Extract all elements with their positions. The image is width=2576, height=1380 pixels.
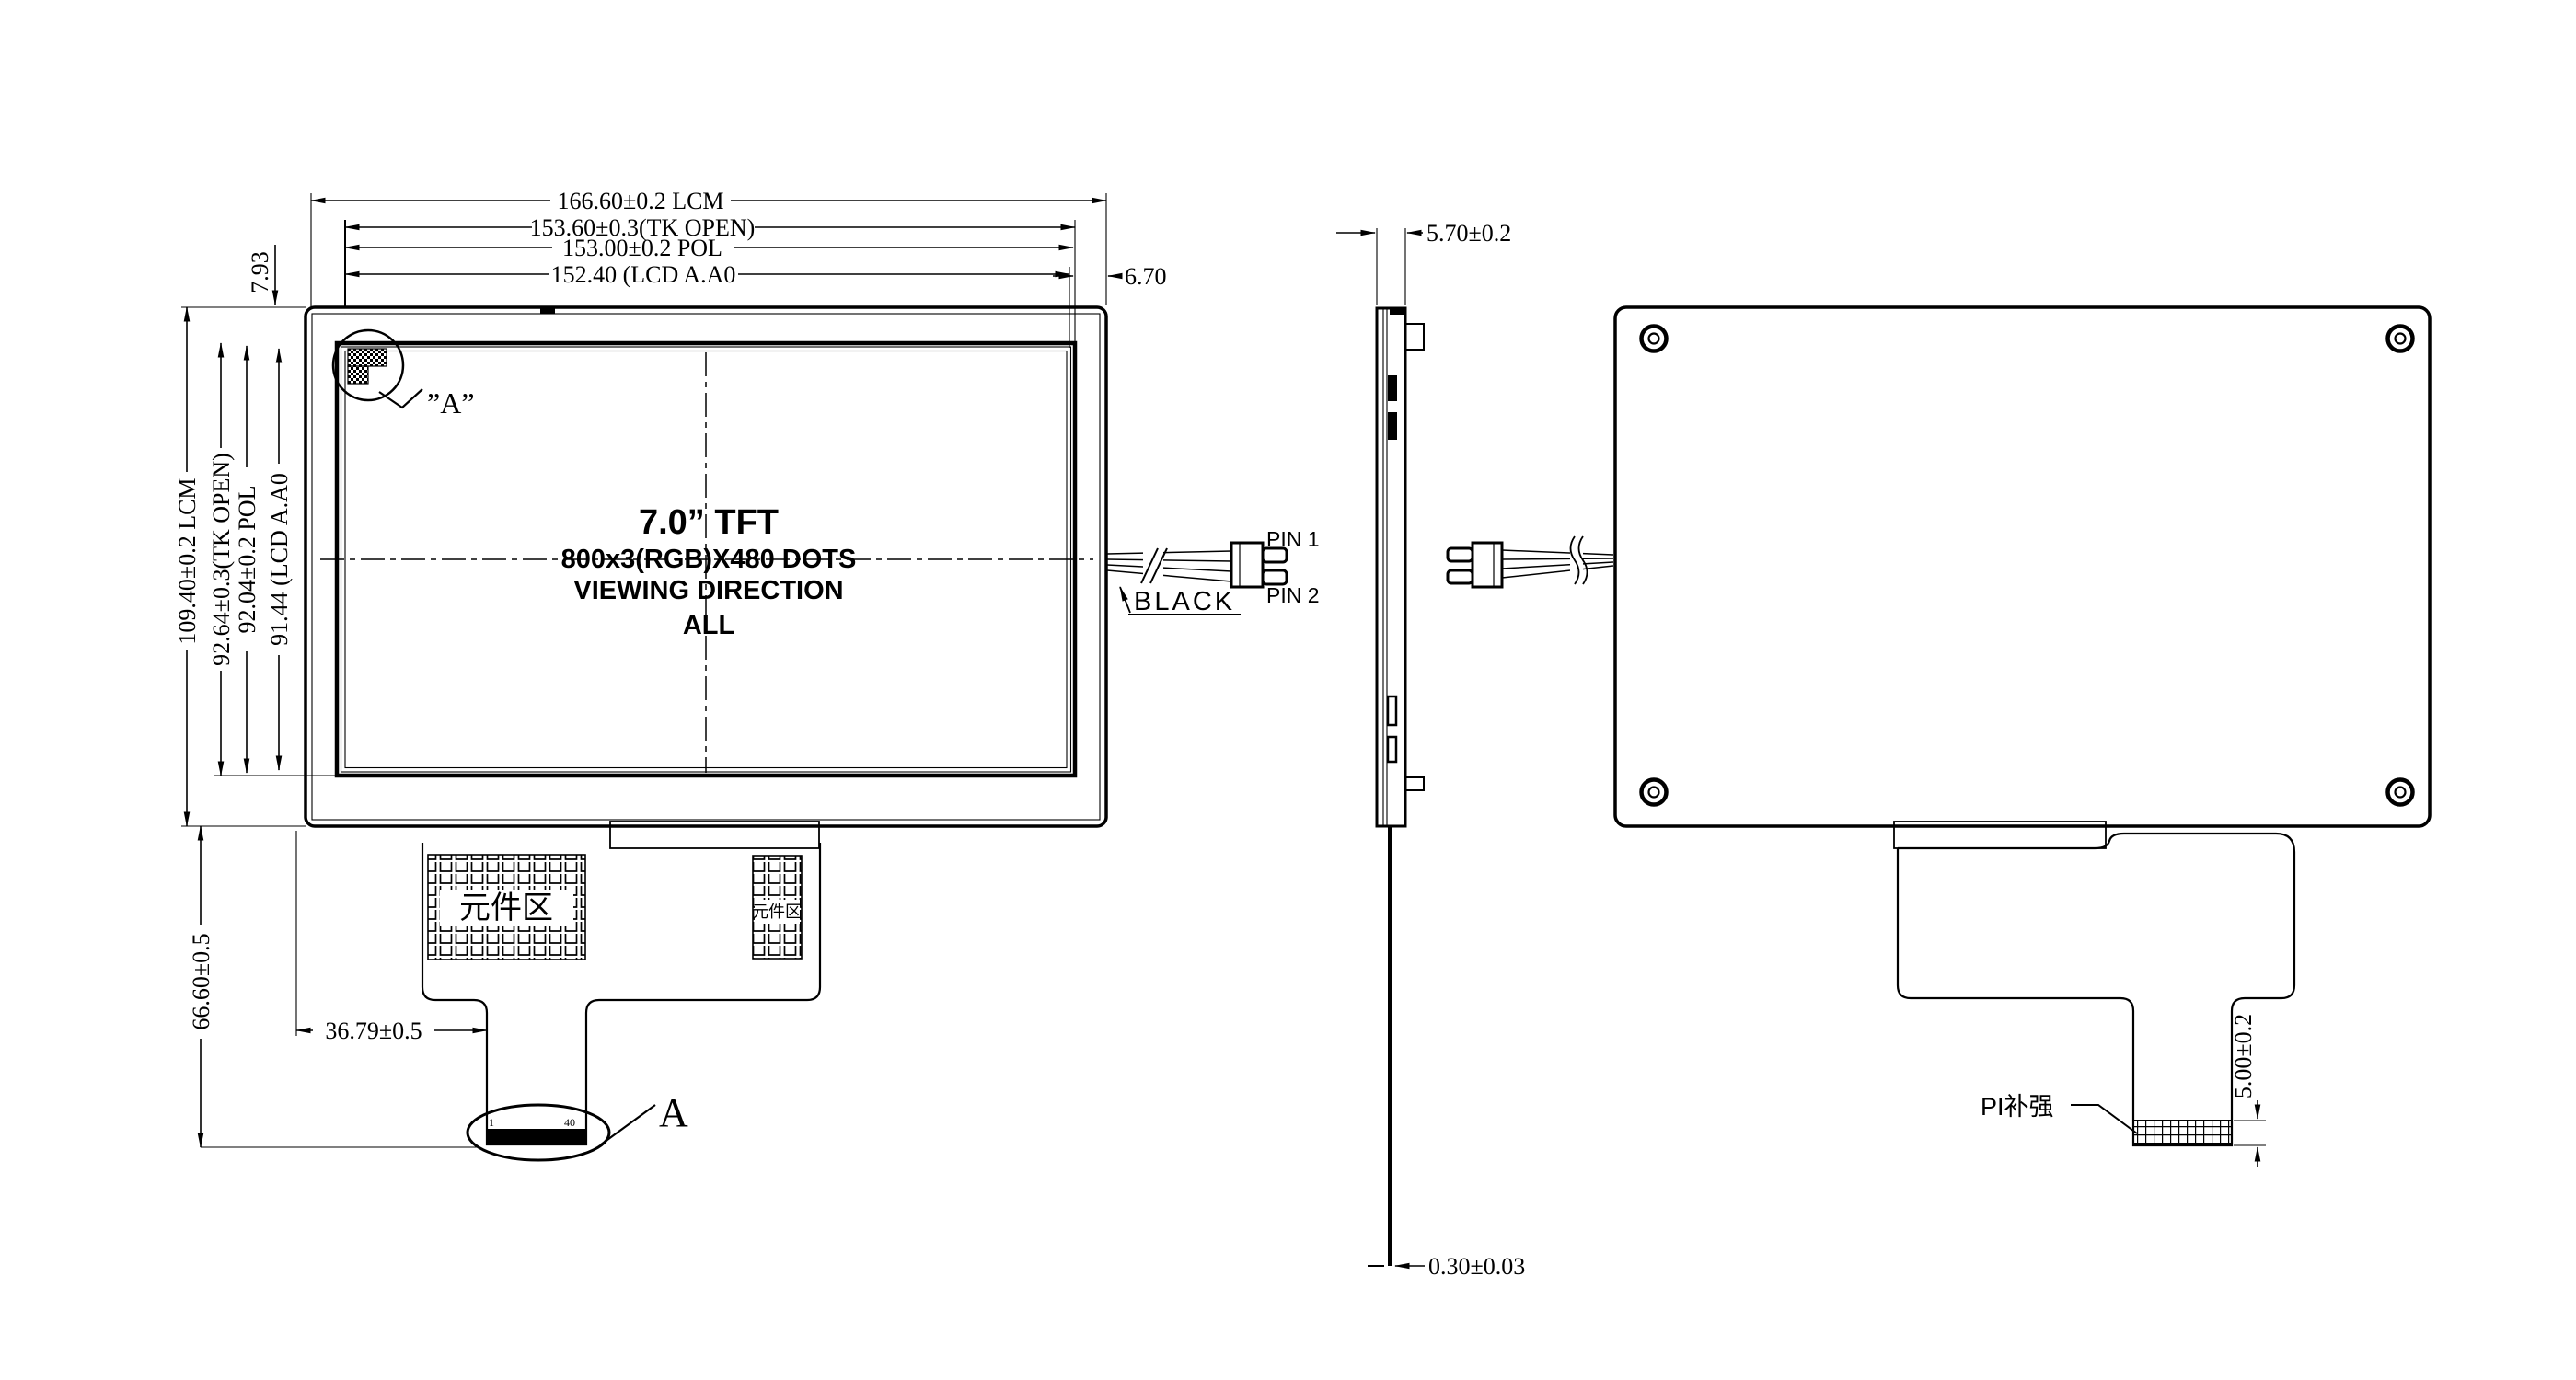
dim-height-pol: 92.04±0.2 POL [234,486,260,634]
pin2-label: PIN 2 [1266,583,1320,607]
dim-width-pol: 153.00±0.2 POL [562,235,722,261]
pad-first-label: 1 [489,1116,494,1129]
top-edge-tab [540,307,555,314]
dim-tail-offset: 36.79±0.5 [325,1018,422,1044]
detail-a-ref: ”A” [427,386,475,420]
dim-right-gap: 6.70 [1125,263,1167,290]
front-view [174,188,1287,1160]
dim-stiffener-height: 5.00±0.2 [2230,1014,2257,1098]
stiffener-leader [2071,1105,2137,1133]
dim-width-lcm: 166.60±0.2 LCM [557,188,723,214]
side-top-cap [1390,308,1405,315]
mounting-hole [2388,327,2413,351]
component-area-label: 元件区 [459,891,553,926]
side-component [1388,737,1396,762]
detail-a-ellipse-leader [601,1105,655,1144]
back-outline [1615,307,2430,826]
side-bottom-tab [1405,777,1424,790]
dim-width-aa: 152.40 (LCD A.A0 [551,261,736,288]
pin1-label: PIN 1 [1266,527,1320,551]
dim-height-tk: 92.64±0.3(TK OPEN) [208,453,235,666]
dim-height-lcm: 109.40±0.2 LCM [174,477,201,644]
dim-thickness: 5.70±0.2 [1427,220,1511,247]
fpc-contact-bar [487,1129,586,1144]
pad-last-label: 40 [564,1116,575,1129]
back-view-labels: PI补强 5.00±0.2 [1981,1014,2257,1121]
pi-stiffener-bar [2133,1121,2232,1145]
resolution-label: 800x3(RGB)X480 DOTS [561,545,857,574]
side-view-labels: 5.70±0.2 0.30±0.03 [1427,220,1525,1280]
component-area-small-label: 元件区 [752,903,802,921]
detail-a-leader [379,389,422,408]
detail-a-label: A [659,1090,688,1135]
side-component [1388,375,1397,401]
front-view-labels: 166.60±0.2 LCM 153.60±0.3(TK OPEN) 153.0… [174,188,1320,1135]
driver-ic [348,349,387,384]
back-view [1615,307,2430,1167]
engineering-drawing-canvas: 166.60±0.2 LCM 153.60±0.3(TK OPEN) 153.0… [0,0,2576,1380]
stiffener-label: PI补强 [1981,1093,2054,1121]
dim-fpc-thickness: 0.30±0.03 [1428,1253,1525,1280]
dim-top-gap: 7.93 [247,251,273,293]
backlight-cable [1107,546,1231,586]
side-component [1388,696,1396,725]
side-view [1336,228,1425,1266]
dim-fpc-length: 66.60±0.5 [188,933,214,1029]
viewing-direction-label: VIEWING DIRECTION [573,576,843,605]
mounting-hole [1642,327,1667,351]
mounting-hole [1642,780,1667,805]
side-top-tab [1405,324,1424,350]
dim-height-aa: 91.44 (LCD A.A0 [266,473,293,646]
side-component [1388,412,1397,440]
panel-size-label: 7.0” TFT [639,503,779,542]
viewing-direction-value: ALL [683,611,734,640]
wire-color-label: BLACK [1134,587,1235,616]
mounting-hole [2388,780,2413,805]
back-cable-assembly [1448,536,1613,587]
